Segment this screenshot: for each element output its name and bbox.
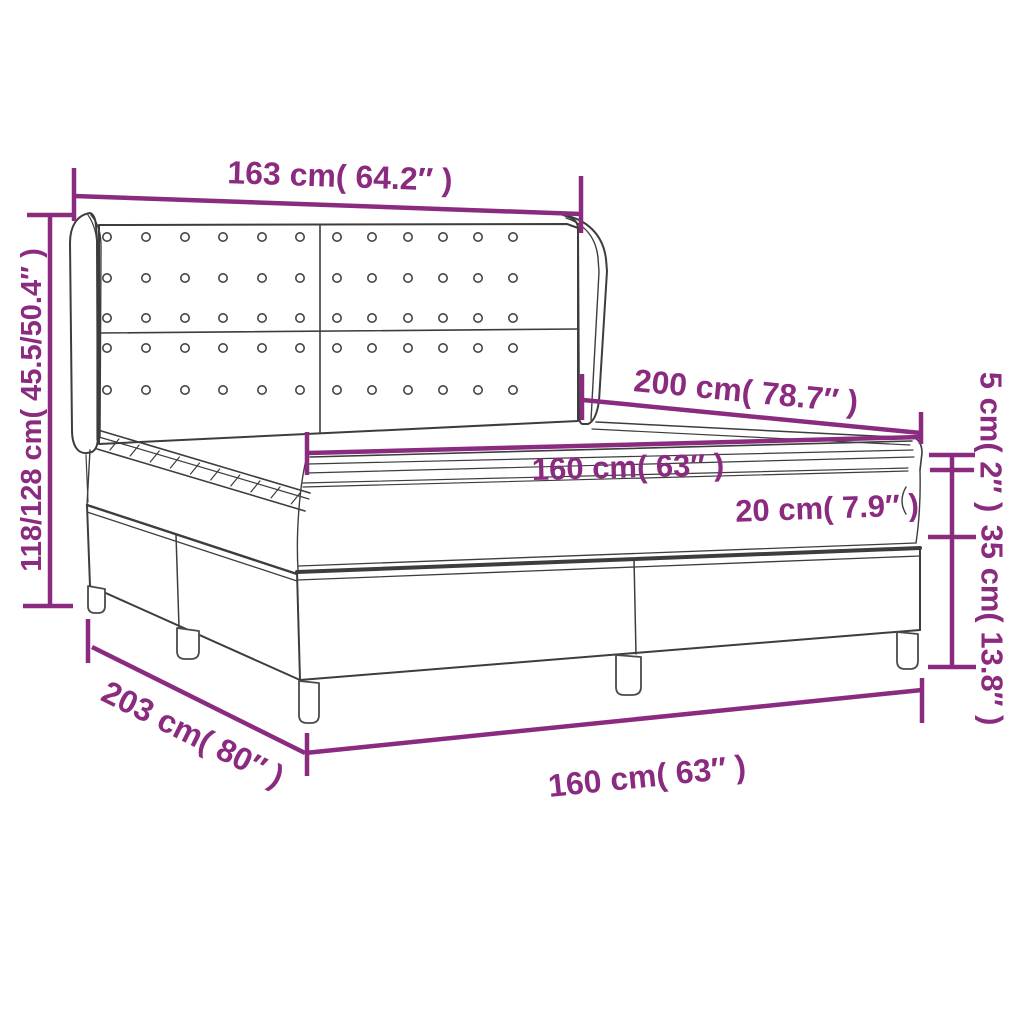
tufting-button — [181, 386, 189, 394]
tufting-button — [219, 344, 227, 352]
tufting-button — [219, 274, 227, 282]
tufting-button — [368, 344, 376, 352]
base-front-divider — [634, 559, 636, 654]
tufting-button — [181, 233, 189, 241]
tufting-button — [296, 233, 304, 241]
label-bed-length: 203 cm( 80″ ) — [96, 674, 290, 795]
tufting-button — [368, 233, 376, 241]
tufting-button — [439, 314, 447, 322]
tufting-button — [439, 344, 447, 352]
tufting-button — [509, 314, 517, 322]
tufting-button — [474, 314, 482, 322]
tufting-button — [296, 386, 304, 394]
leg — [177, 628, 199, 659]
label-mattress-height: 20 cm( 7.9″ ) — [735, 487, 920, 528]
tufting-button — [333, 314, 341, 322]
tufting-button — [258, 314, 266, 322]
tufting-button — [103, 386, 111, 394]
tufting-button — [258, 344, 266, 352]
tufting-button — [103, 314, 111, 322]
tufting-button — [181, 314, 189, 322]
label-topper-height: 5 cm( 2″ ) — [974, 372, 1009, 513]
base-left-top-edge — [87, 505, 297, 574]
tufting-button — [404, 233, 412, 241]
tufting-button — [368, 314, 376, 322]
tufting-button — [509, 386, 517, 394]
tufting-button — [439, 233, 447, 241]
leg — [299, 681, 319, 723]
tufting-button — [219, 314, 227, 322]
tufting-button — [103, 274, 111, 282]
headboard-right-wing — [563, 215, 607, 424]
tufting-button — [509, 274, 517, 282]
tufting-button — [219, 386, 227, 394]
leg — [897, 632, 918, 669]
dim-right-stack — [928, 455, 976, 667]
tufting-button — [258, 274, 266, 282]
diagram-canvas: 163 cm( 64.2″ ) 118/128 cm( 45.5/50.4″ )… — [0, 0, 1024, 1024]
tufting-button — [474, 344, 482, 352]
tufting-button — [142, 233, 150, 241]
slat-strip-bottom — [97, 449, 305, 511]
tufting-button — [142, 274, 150, 282]
tufting-button — [296, 314, 304, 322]
dim-base-width — [305, 678, 922, 753]
label-bed-depth: 200 cm( 78.7″ ) — [632, 362, 860, 420]
leg — [88, 586, 105, 613]
tufting-button — [474, 233, 482, 241]
base-left-edge — [87, 505, 90, 586]
label-mattress-width: 160 cm( 63″ ) — [531, 447, 724, 487]
tufting-button — [296, 344, 304, 352]
label-headboard-width: 163 cm( 64.2″ ) — [227, 154, 453, 198]
bed-dimension-diagram: 163 cm( 64.2″ ) 118/128 cm( 45.5/50.4″ )… — [0, 0, 1024, 1024]
label-base-width: 160 cm( 63″ ) — [546, 748, 747, 804]
tufting-button — [333, 386, 341, 394]
base-left-divider — [176, 535, 179, 627]
tufting-button — [404, 274, 412, 282]
tufting-button — [404, 344, 412, 352]
tufting-button — [142, 344, 150, 352]
tufting-button — [103, 344, 111, 352]
tufting-button — [368, 386, 376, 394]
base-front-left-edge — [297, 572, 300, 680]
tufting-button — [219, 233, 227, 241]
tufting-button — [509, 233, 517, 241]
dimension-labels: 163 cm( 64.2″ ) 118/128 cm( 45.5/50.4″ )… — [16, 154, 1010, 804]
mattress-bottom-edge — [299, 543, 916, 566]
base-left-top-edge-2 — [87, 512, 297, 581]
headboard-left-wing — [70, 213, 98, 453]
label-headboard-height: 118/128 cm( 45.5/50.4″ ) — [16, 248, 48, 571]
tufting-button — [404, 314, 412, 322]
tufting-button — [333, 274, 341, 282]
tufting-button — [333, 233, 341, 241]
mattress-left-front-edge — [297, 460, 306, 570]
tufting-button — [296, 274, 304, 282]
tufting-button — [368, 274, 376, 282]
headboard-horizontal-seam — [99, 329, 578, 333]
tufting-button — [333, 344, 341, 352]
label-base-height: 35 cm( 13.8″ ) — [975, 525, 1010, 726]
tufting-button — [474, 274, 482, 282]
tufting-button — [439, 386, 447, 394]
tufting-button — [258, 233, 266, 241]
bed-drawing — [70, 213, 922, 723]
tufting-button — [439, 274, 447, 282]
tufting-button — [142, 314, 150, 322]
headboard-button-grid — [103, 233, 517, 394]
tufting-button — [181, 344, 189, 352]
tufting-button — [509, 344, 517, 352]
base-front-bottom-edge — [300, 630, 920, 680]
tufting-button — [103, 233, 111, 241]
tufting-button — [181, 274, 189, 282]
dimension-annotations — [23, 168, 976, 776]
leg — [616, 655, 641, 695]
tufting-button — [404, 386, 412, 394]
tufting-button — [258, 386, 266, 394]
tufting-button — [474, 386, 482, 394]
headboard-panel — [99, 224, 578, 444]
tufting-button — [142, 386, 150, 394]
